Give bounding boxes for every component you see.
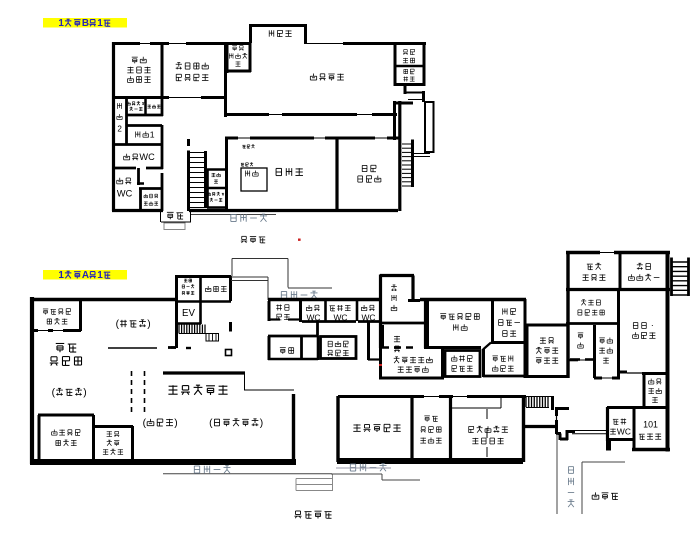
svg-text:1: 1: [97, 18, 103, 29]
svg-text:WC: WC: [362, 312, 376, 322]
svg-text:WC: WC: [307, 312, 321, 322]
svg-text:1: 1: [150, 129, 155, 139]
svg-text:(: (: [116, 319, 120, 330]
svg-text:A: A: [82, 270, 89, 281]
svg-text:(: (: [52, 387, 56, 398]
svg-text:(: (: [209, 418, 213, 429]
svg-text:1: 1: [58, 18, 64, 29]
svg-text:): ): [260, 418, 263, 429]
svg-text:WC: WC: [139, 152, 155, 162]
svg-text:): ): [147, 319, 150, 330]
svg-text:WC: WC: [617, 426, 631, 436]
svg-text:1: 1: [58, 270, 64, 281]
svg-text:EV: EV: [182, 308, 195, 319]
svg-text:(: (: [143, 418, 147, 429]
svg-text:WC: WC: [334, 312, 348, 322]
svg-text:101: 101: [643, 419, 658, 429]
svg-text:B: B: [82, 18, 89, 29]
svg-text:WC: WC: [117, 189, 133, 199]
svg-text:): ): [83, 387, 86, 398]
svg-text:2: 2: [117, 125, 122, 134]
svg-text:): ): [174, 418, 177, 429]
svg-text:1: 1: [97, 270, 103, 281]
